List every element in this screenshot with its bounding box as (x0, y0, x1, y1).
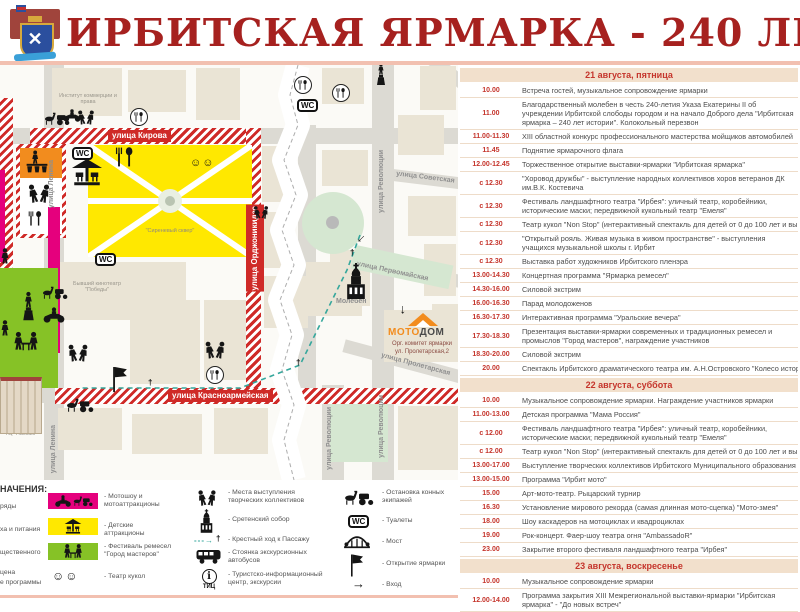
park-name-label: "Сиреневый сквер" (120, 228, 220, 234)
legend-swatch-kids (48, 518, 98, 535)
schedule-time: 10.00 (460, 397, 522, 404)
schedule-event: Парад молодоженов (522, 299, 798, 308)
schedule-row: 16.30 Установление мирового рекорда (сам… (460, 501, 798, 515)
legend-item-rest-food: ха и питания (0, 526, 40, 534)
wc-icon: WC (95, 253, 116, 266)
carousel-icon (64, 519, 82, 534)
procession-route-icon: ---→ (194, 536, 214, 545)
procession-cross-icon: † (216, 534, 220, 543)
org-address-label: ул. Пролетарская,2 (380, 349, 458, 356)
motodom-dom-text: ДОМ (420, 327, 445, 338)
schedule-time: с 12.30 (460, 221, 522, 228)
fair-poster: { "header": { "title": "ИРБИТСКАЯ ЯРМАРК… (0, 0, 800, 600)
procession-cross-icon: † (148, 378, 152, 387)
schedule-event: XIII областной конкурс профессионального… (522, 132, 798, 141)
street-label-revolyutsii: улица Революции (326, 407, 333, 470)
schedule-row: 13.00-17.00 Выступление творческих колле… (460, 459, 798, 473)
legend-label-carriages: - Остановка конных экипажей (382, 489, 458, 505)
schedule-row: 11.00 Благодарственный молебен в честь 2… (460, 98, 798, 130)
legend-swatch-moto (48, 493, 98, 509)
legend-item-rows: ряды (0, 503, 16, 511)
schedule-time: 18.30-20.00 (460, 351, 522, 358)
legend-item-stage: цена (0, 569, 15, 577)
schedule-day-header: 23 августа, воскресенье (460, 559, 798, 573)
legend-label-entrance: - Вход (382, 581, 458, 589)
puppet-stage-icon (26, 150, 48, 174)
schedule-time: 16.30-17.30 (460, 314, 522, 321)
motodom-logo-text: МОТОДОМ (388, 327, 444, 338)
schedule-time: 17.30-18.30 (460, 333, 522, 340)
schedule-event: Рок-концерт. Фаер-шоу театра огня "Ambas… (522, 531, 798, 540)
motorcycle-icon (42, 307, 66, 323)
motodom-moto-text: МОТО (388, 327, 420, 338)
procession-cross-icon: † (350, 248, 354, 257)
legend-bottom-line (0, 595, 458, 598)
schedule-row: 18.30-20.00 Силовой экстрим (460, 348, 798, 362)
legend-label-crafts: - Фестиваль ремесел "Город мастеров" (104, 543, 174, 559)
schedule-day-section: 22 августа, суббота 10.00 Музыкальное со… (460, 378, 798, 557)
cinema-label: Бывший кинотеатр "Победы" (62, 281, 132, 293)
org-committee-label: Орг. комитет ярмарки (380, 341, 458, 348)
craftsmen-icon (62, 544, 84, 559)
dancers-icon (252, 205, 270, 219)
map-legend: НАЧЕНИЯ: ряды ха и питания щественного ц… (0, 481, 458, 600)
schedule-time: с 12.30 (460, 258, 522, 265)
monument-icon (22, 291, 35, 321)
logo-crown-icon (28, 16, 42, 22)
street-label-kirova: улица Кирова (108, 130, 171, 142)
dancers-icon (26, 183, 52, 203)
schedule-time: 12.00-12.45 (460, 161, 522, 168)
legend-label-kids: - Детские аттракционы (104, 522, 174, 538)
schedule-event: Концертная программа "Ярмарка ремесел" (522, 271, 798, 280)
schedule-event: Музыкальное сопровождение ярмарки. Награ… (522, 396, 798, 405)
passage-building-sketch (0, 377, 42, 434)
legend-label-opening: - Открытие ярмарки (382, 560, 458, 568)
legend-item-stage-2: е программы (0, 579, 41, 587)
schedule-time: 18.00 (460, 518, 522, 525)
schedule-row: с 12.30 "Открытый рояль. Живая музыка в … (460, 232, 798, 255)
schedule-time: 20.00 (460, 365, 522, 372)
schedule-row: с 12.30 Фестиваль ландшафтного театра "И… (460, 195, 798, 218)
schedule-row: 10.00 Музыкальное сопровождение ярмарки.… (460, 394, 798, 408)
schedule-event: Театр кукол "Non Stop" (интерактивный сп… (522, 447, 798, 456)
schedule-time: с 12.00 (460, 430, 522, 437)
city-map: † † † улица Кирова улица Орджоникидзе ул… (0, 65, 458, 480)
schedule-time: с 12.30 (460, 203, 522, 210)
cathedral-icon (344, 263, 368, 299)
schedule-row: с 12.00 Театр кукол "Non Stop" (интеракт… (460, 445, 798, 459)
schedule-event: Шоу каскадеров на мотоциклах и квадроцик… (522, 517, 798, 526)
schedule-time: 11.00 (460, 110, 522, 117)
schedule-day-section: 21 августа, пятница 10.00 Встреча гостей… (460, 68, 798, 376)
schedule-time: с 12.30 (460, 240, 522, 247)
food-icon (130, 108, 148, 126)
schedule-row: с 12.30 Театр кукол "Non Stop" (интеракт… (460, 218, 798, 232)
bridge-icon (344, 535, 370, 549)
logo-saltire: ✕ (25, 29, 45, 49)
schedule-time: 14.30-16.00 (460, 286, 522, 293)
schedule-time: 16.30 (460, 504, 522, 511)
schedule-time: 19.00 (460, 532, 522, 539)
schedule-row: 20.00 Спектакль Ирбитского драматическог… (460, 362, 798, 376)
schedule-event: Торжественное открытие выставки-ярмарки … (522, 160, 798, 169)
page-title: ИРБИТСКАЯ ЯРМАРКА - 240 ЛЕТ ИСТОРИИ (66, 10, 800, 55)
schedule-event: Выступление творческих коллективов Ирбит… (522, 461, 798, 470)
schedule-row: 17.30-18.30 Презентация выставки-ярмарки… (460, 325, 798, 348)
procession-cross-icon: † (296, 358, 300, 367)
wc-icon: WC (297, 99, 318, 112)
schedule-event: Театр кукол "Non Stop" (интерактивный сп… (522, 220, 798, 229)
motodom-roof-inner (415, 320, 431, 327)
schedule-event: Силовой экстрим (522, 285, 798, 294)
schedule-event: Спектакль Ирбитского драматического теат… (522, 364, 798, 373)
food-icon (294, 76, 312, 94)
coat-of-arms-logo: ✕ (8, 5, 62, 61)
schedule-row: 15.00 Арт-мото-театр. Рыцарский турнир (460, 487, 798, 501)
schedule-row: 18.00 Шоу каскадеров на мотоциклах и ква… (460, 515, 798, 529)
street-label-krasnoarmeyskaya: улица Красноармейская (168, 390, 273, 402)
fair-opening-flag-icon (350, 553, 364, 577)
food-icon (332, 84, 350, 102)
schedule-time: 16.00-16.30 (460, 300, 522, 307)
schedule-event: Благодарственный молебен в честь 240-лет… (522, 100, 798, 127)
logo-flag-icon (17, 7, 26, 10)
food-icon (206, 366, 224, 384)
street-label-revolyutsii: улица Революции (378, 150, 385, 213)
schedule-time: с 12.00 (460, 448, 522, 455)
street-label-lenina: улица Ленина (50, 425, 57, 473)
tic-text: ТИЦ (199, 584, 219, 590)
schedule-event: Музыкальное сопровождение ярмарки (522, 577, 798, 586)
schedule-time: 13.00-17.00 (460, 462, 522, 469)
dancers-icon (203, 340, 227, 359)
schedule-row: 11.45 Поднятие ярмарочного флага (460, 144, 798, 158)
schedule-row: 13.00-14.30 Концертная программа "Ярмарк… (460, 269, 798, 283)
motorcycle-icon (53, 495, 73, 507)
motodom-block: МОТОДОМ Орг. комитет ярмарки ул. Пролета… (386, 313, 458, 363)
dancers-icon (66, 343, 90, 362)
schedule-time: 11.00-13.00 (460, 411, 522, 418)
entrance-arrow-icon: → (400, 304, 410, 317)
schedule-row: 16.00-16.30 Парад молодоженов (460, 297, 798, 311)
schedule-event: Поднятие ярмарочного флага (522, 146, 798, 155)
schedule-row: 12.00-12.45 Торжественное открытие выста… (460, 158, 798, 172)
legend-label-toilets: - Туалеты (382, 517, 458, 525)
horse-carriage-icon (66, 397, 94, 413)
program-schedule: 21 августа, пятница 10.00 Встреча гостей… (460, 66, 798, 612)
schedule-time: 10.00 (460, 87, 522, 94)
schedule-event: Программа "Ирбит мото" (522, 475, 798, 484)
schedule-event: Арт-мото-театр. Рыцарский турнир (522, 489, 798, 498)
schedule-row: с 12.30 "Хоровод дружбы" - выступление н… (460, 172, 798, 195)
street-label-revolyutsii: улица Революции (378, 395, 385, 458)
schedule-time: с 12.30 (460, 180, 522, 187)
schedule-time: 15.00 (460, 490, 522, 497)
legend-item-public: щественного (0, 549, 41, 557)
moleben-label: Молебен (336, 298, 367, 305)
schedule-time: 11.00-11.30 (460, 133, 522, 140)
schedule-event: Детская программа "Мама Россия" (522, 410, 798, 419)
schedule-row: 19.00 Рок-концерт. Фаер-шоу театра огня … (460, 529, 798, 543)
cathedral-icon (199, 509, 214, 533)
schedule-event: "Открытый рояль. Живая музыка в живом пр… (522, 234, 798, 252)
schedule-day-header: 22 августа, суббота (460, 378, 798, 392)
schedule-event: Фестиваль ландшафтного театра "Ирбея": у… (522, 197, 798, 215)
schedule-row: 11.00-13.00 Детская программа "Мама Росс… (460, 408, 798, 422)
legend-label-cathedral: - Сретенский собор (228, 516, 330, 524)
schedule-row: 12.00-14.00 Программа закрытия XIII Межр… (460, 589, 798, 612)
legend-label-buses: - Стоянка экскурсионных автобусов (228, 549, 330, 565)
schedule-time: 12.00-14.00 (460, 597, 522, 604)
schedule-rows: 10.00 Встреча гостей, музыкальное сопров… (460, 84, 798, 376)
craftsmen-icon (12, 331, 40, 352)
horse-carriage-icon (42, 285, 68, 300)
legend-label-bridge: - Мост (382, 538, 458, 546)
legend-swatch-crafts (48, 543, 98, 560)
legend-icon-puppet-theater: ☺☺ (52, 569, 79, 583)
food-cutlery-icon (28, 211, 43, 226)
motorcycle-icon (62, 109, 82, 122)
tourist-info-icon: i ТИЦ (199, 569, 219, 590)
logo-banner (14, 52, 56, 62)
schedule-event: Интерактивная программа "Уральские вечер… (522, 313, 798, 322)
schedule-event: "Хоровод дружбы" - выступление народных … (522, 174, 798, 192)
schedule-time: 13.00-15.00 (460, 476, 522, 483)
schedule-event: Закрытие второго фестиваля ландшафтного … (522, 545, 798, 554)
schedule-event: Программа закрытия XIII Межрегиональной … (522, 591, 798, 609)
schedule-row: 13.00-15.00 Программа "Ирбит мото" (460, 473, 798, 487)
schedule-event: Установление мирового рекорда (самая дли… (522, 503, 798, 512)
schedule-row: 10.00 Музыкальное сопровождение ярмарки (460, 575, 798, 589)
schedule-time: 23.00 (460, 546, 522, 553)
food-court-icon (115, 147, 135, 167)
schedule-row: с 12.30 Выставка работ художников Ирбитс… (460, 255, 798, 269)
carousel-icon (72, 159, 102, 186)
bus-icon (196, 549, 221, 564)
schedule-row: 23.00 Закрытие второго фестиваля ландшаф… (460, 543, 798, 557)
legend-label-moto: - Мотошоу и мотоаттракционы (104, 493, 174, 509)
schedule-event: Презентация выставки-ярмарки современных… (522, 327, 798, 345)
schedule-row: 16.30-17.30 Интерактивная программа "Ура… (460, 311, 798, 325)
schedule-row: с 12.00 Фестиваль ландшафтного театра "И… (460, 422, 798, 445)
schedule-event: Фестиваль ландшафтного театра "Ирбея": у… (522, 424, 798, 442)
schedule-row: 14.30-16.00 Силовой экстрим (460, 283, 798, 297)
monument-icon (376, 65, 386, 85)
legend-label-tic: - Туристско-информационный центр, экскур… (228, 571, 330, 587)
dancers-icon (196, 489, 218, 506)
person-icon (0, 320, 10, 336)
schedule-event: Выставка работ художников Ирбитского пле… (522, 257, 798, 266)
schedule-time: 10.00 (460, 578, 522, 585)
schedule-row: 11.00-11.30 XIII областной конкурс профе… (460, 130, 798, 144)
schedule-event: Встреча гостей, музыкальное сопровождени… (522, 86, 798, 95)
puppet-theater-icon: ☺☺ (190, 157, 214, 169)
legend-title-fragment: НАЧЕНИЯ: (0, 484, 47, 494)
entrance-arrow-icon: → (352, 579, 365, 589)
schedule-day-header: 21 августа, пятница (460, 68, 798, 82)
person-icon (0, 248, 10, 264)
moto-truck-icon (73, 495, 93, 507)
info-i-glyph: i (202, 569, 217, 584)
fair-opening-flag-icon (112, 365, 128, 393)
wc-icon: WC (348, 515, 369, 528)
schedule-event: Силовой экстрим (522, 350, 798, 359)
institute-label: Институт коммерции и права (58, 93, 118, 105)
legend-label-procession: - Крестный ход к Пассажу (228, 536, 330, 544)
legend-label-puppet: - Театр кукол (104, 573, 174, 581)
schedule-row: 10.00 Встреча гостей, музыкальное сопров… (460, 84, 798, 98)
schedule-time: 13.00-14.30 (460, 272, 522, 279)
schedule-day-section: 23 августа, воскресенье 10.00 Музыкально… (460, 559, 798, 612)
horse-carriage-icon (344, 489, 374, 506)
schedule-rows: 10.00 Музыкальное сопровождение ярмарки … (460, 575, 798, 612)
schedule-rows: 10.00 Музыкальное сопровождение ярмарки.… (460, 394, 798, 557)
legend-label-performances: - Места выступления творческих коллектив… (228, 489, 330, 505)
schedule-time: 11.45 (460, 147, 522, 154)
